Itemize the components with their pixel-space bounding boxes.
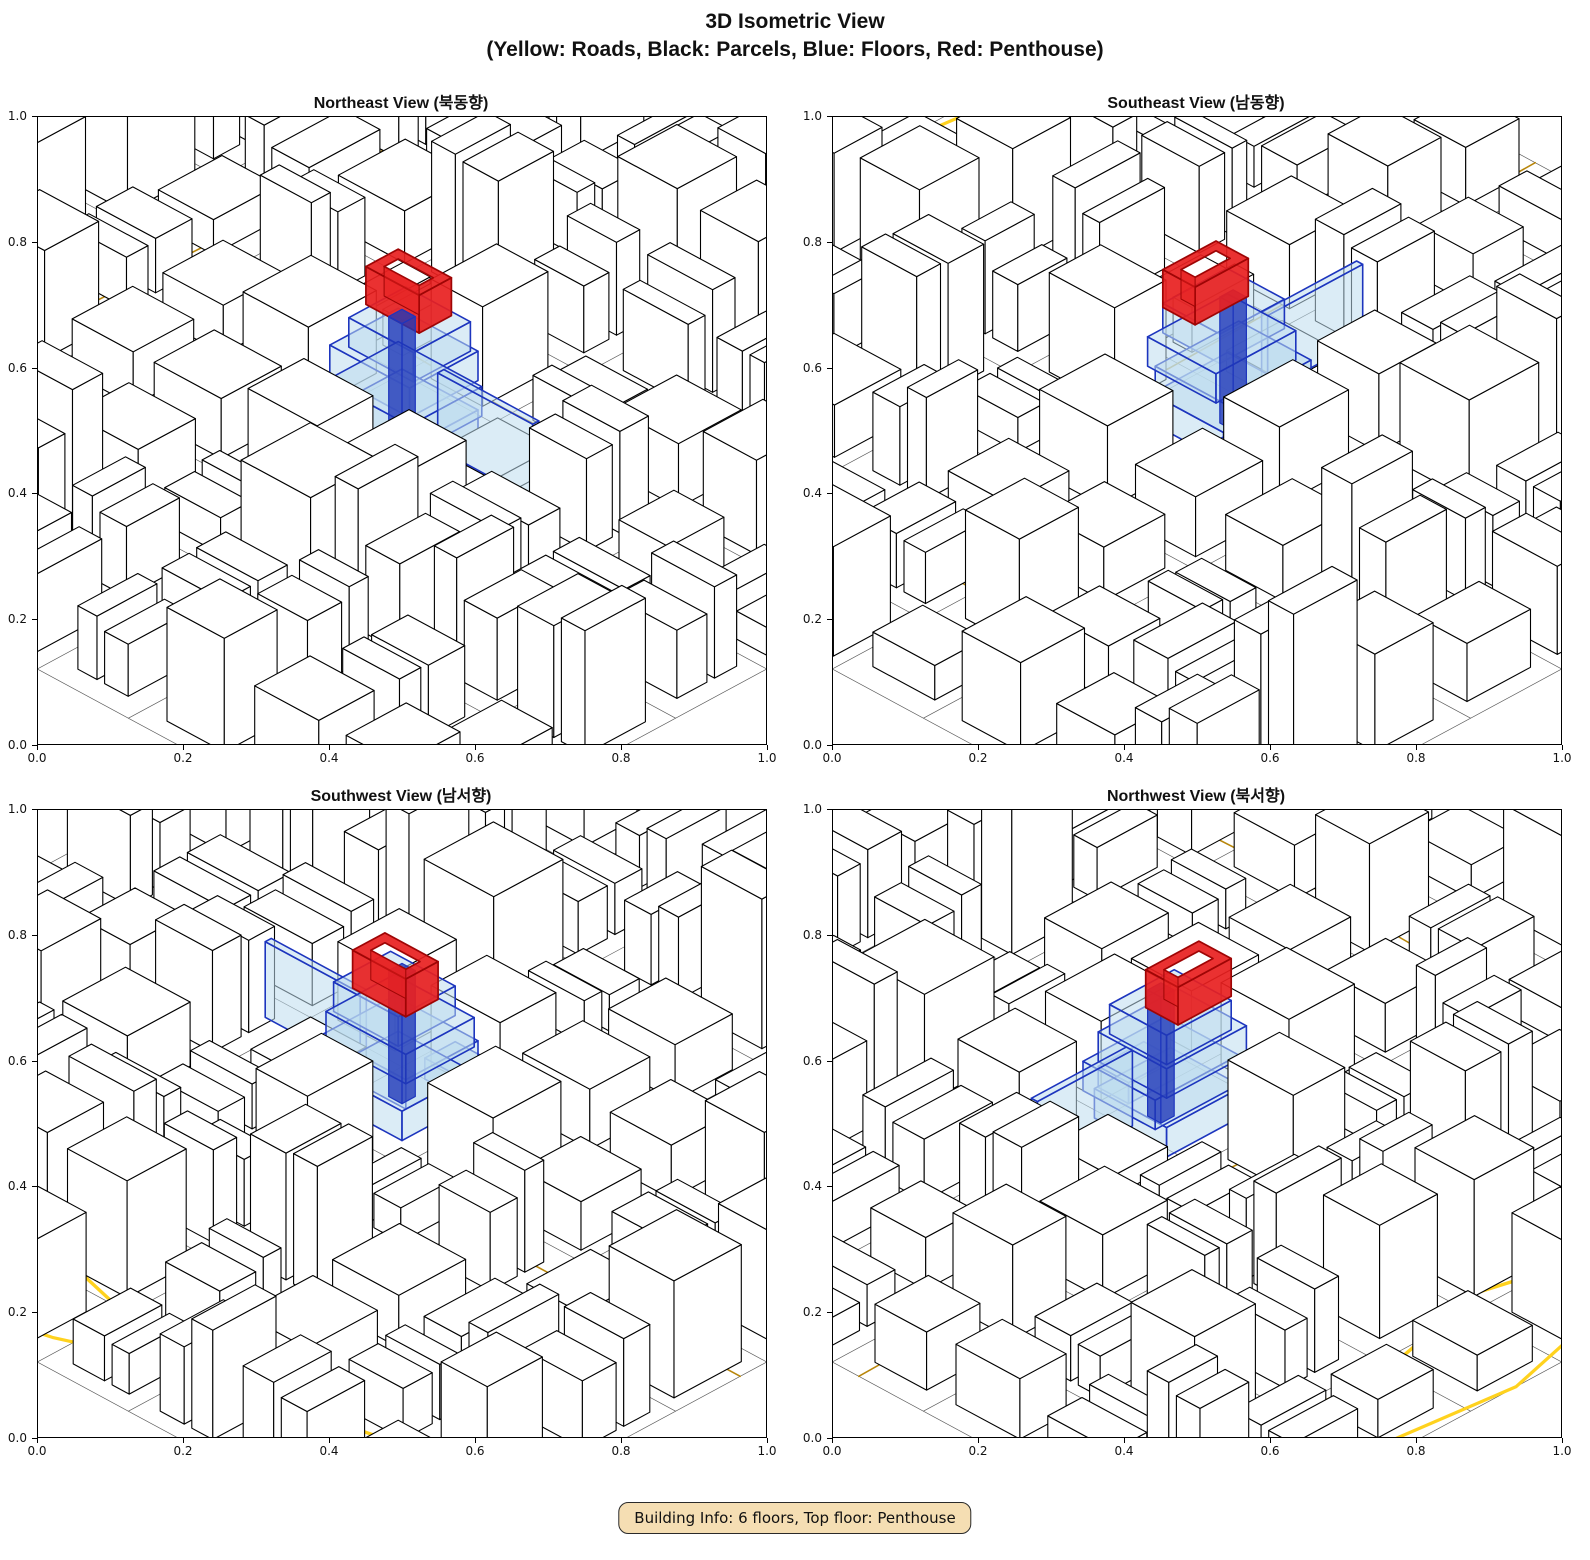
x-tick-mark [621, 1438, 622, 1443]
plot-title-northwest: Northwest View (북서향) [832, 769, 1560, 809]
x-tick-label: 1.0 [757, 751, 776, 765]
x-tick-label: 1.0 [1552, 751, 1571, 765]
y-tick-label: 1.0 [803, 802, 822, 816]
axes-northwest [832, 809, 1562, 1438]
y-axis-southwest: 0.00.20.40.60.81.0 [0, 809, 37, 1438]
y-tick-label: 0.4 [803, 1179, 822, 1193]
subplot-grid: Northeast View (북동향) 0.00.20.40.60.81.0 … [0, 76, 1590, 1462]
iso-scene-southwest [38, 810, 766, 1437]
y-tick-label: 1.0 [8, 802, 27, 816]
figure-header: 3D Isometric View (Yellow: Roads, Black:… [0, 0, 1590, 64]
y-tick-label: 0.2 [803, 1305, 822, 1319]
y-tick-label: 0.0 [8, 738, 27, 752]
x-tick-label: 1.0 [1552, 1444, 1571, 1458]
y-axis-southeast: 0.00.20.40.60.81.0 [795, 116, 832, 745]
y-tick-label: 0.2 [8, 1305, 27, 1319]
figure-subtitle: (Yellow: Roads, Black: Parcels, Blue: Fl… [0, 36, 1590, 64]
x-tick-label: 0.8 [611, 751, 630, 765]
plot-title-southeast: Southeast View (남동향) [832, 76, 1560, 116]
x-tick-label: 0.6 [1260, 1444, 1279, 1458]
x-tick-label: 0.6 [465, 751, 484, 765]
x-tick-label: 0.4 [1114, 1444, 1133, 1458]
plot-title-northeast: Northeast View (북동향) [37, 76, 765, 116]
x-tick-mark [978, 745, 979, 750]
iso-scene-northwest [833, 810, 1561, 1437]
x-tick-label: 1.0 [757, 1444, 776, 1458]
x-tick-label: 0.2 [968, 751, 987, 765]
x-tick-label: 0.0 [822, 1444, 841, 1458]
subplot-northeast: Northeast View (북동향) 0.00.20.40.60.81.0 … [0, 76, 795, 769]
building-info-badge: Building Info: 6 floors, Top floor: Pent… [618, 1502, 971, 1534]
x-tick-mark [978, 1438, 979, 1443]
x-tick-label: 0.2 [173, 751, 192, 765]
x-tick-mark [832, 1438, 833, 1443]
x-tick-mark [767, 745, 768, 750]
x-tick-mark [832, 745, 833, 750]
y-tick-label: 0.0 [8, 1431, 27, 1445]
x-tick-label: 0.2 [173, 1444, 192, 1458]
y-axis-northwest: 0.00.20.40.60.81.0 [795, 809, 832, 1438]
x-tick-label: 0.0 [822, 751, 841, 765]
x-tick-label: 0.8 [1406, 1444, 1425, 1458]
iso-scene-northeast [38, 117, 766, 744]
x-tick-label: 0.8 [1406, 751, 1425, 765]
x-tick-mark [329, 1438, 330, 1443]
y-tick-label: 1.0 [8, 109, 27, 123]
x-tick-label: 0.2 [968, 1444, 987, 1458]
x-tick-label: 0.0 [27, 751, 46, 765]
y-tick-label: 0.2 [8, 612, 27, 626]
x-tick-label: 0.6 [465, 1444, 484, 1458]
x-tick-mark [1124, 745, 1125, 750]
subplot-northwest: Northwest View (북서향) 0.00.20.40.60.81.0 … [795, 769, 1590, 1462]
x-axis-northeast: 0.00.20.40.60.81.0 [37, 745, 767, 769]
x-tick-mark [1270, 745, 1271, 750]
x-tick-label: 0.4 [1114, 751, 1133, 765]
y-tick-label: 0.4 [8, 486, 27, 500]
y-axis-northeast: 0.00.20.40.60.81.0 [0, 116, 37, 745]
y-tick-label: 0.6 [803, 1054, 822, 1068]
figure-title: 3D Isometric View [0, 8, 1590, 36]
x-axis-southeast: 0.00.20.40.60.81.0 [832, 745, 1562, 769]
x-tick-label: 0.6 [1260, 751, 1279, 765]
x-tick-mark [621, 745, 622, 750]
y-tick-label: 0.8 [803, 928, 822, 942]
y-tick-label: 0.8 [8, 235, 27, 249]
x-axis-southwest: 0.00.20.40.60.81.0 [37, 1438, 767, 1462]
x-tick-mark [475, 745, 476, 750]
axes-northeast [37, 116, 767, 745]
x-tick-label: 0.4 [319, 751, 338, 765]
subplot-southeast: Southeast View (남동향) 0.00.20.40.60.81.0 … [795, 76, 1590, 769]
x-tick-mark [1562, 1438, 1563, 1443]
y-tick-label: 0.4 [803, 486, 822, 500]
x-tick-mark [767, 1438, 768, 1443]
x-tick-mark [37, 1438, 38, 1443]
y-tick-label: 0.0 [803, 738, 822, 752]
y-tick-label: 0.6 [8, 361, 27, 375]
x-tick-mark [1124, 1438, 1125, 1443]
y-tick-label: 0.8 [8, 928, 27, 942]
axes-southeast [832, 116, 1562, 745]
y-tick-label: 0.8 [803, 235, 822, 249]
x-tick-mark [1416, 1438, 1417, 1443]
x-tick-mark [183, 1438, 184, 1443]
axes-southwest [37, 809, 767, 1438]
x-tick-mark [475, 1438, 476, 1443]
y-tick-label: 0.6 [803, 361, 822, 375]
x-tick-mark [37, 745, 38, 750]
x-tick-label: 0.8 [611, 1444, 630, 1458]
y-tick-label: 0.2 [803, 612, 822, 626]
x-tick-mark [183, 745, 184, 750]
y-tick-label: 0.6 [8, 1054, 27, 1068]
iso-scene-southeast [833, 117, 1561, 744]
x-axis-northwest: 0.00.20.40.60.81.0 [832, 1438, 1562, 1462]
x-tick-mark [1416, 745, 1417, 750]
y-tick-label: 0.4 [8, 1179, 27, 1193]
x-tick-mark [1562, 745, 1563, 750]
y-tick-label: 1.0 [803, 109, 822, 123]
plot-title-southwest: Southwest View (남서향) [37, 769, 765, 809]
x-tick-mark [1270, 1438, 1271, 1443]
subplot-southwest: Southwest View (남서향) 0.00.20.40.60.81.0 … [0, 769, 795, 1462]
x-tick-label: 0.0 [27, 1444, 46, 1458]
x-tick-label: 0.4 [319, 1444, 338, 1458]
x-tick-mark [329, 745, 330, 750]
y-tick-label: 0.0 [803, 1431, 822, 1445]
